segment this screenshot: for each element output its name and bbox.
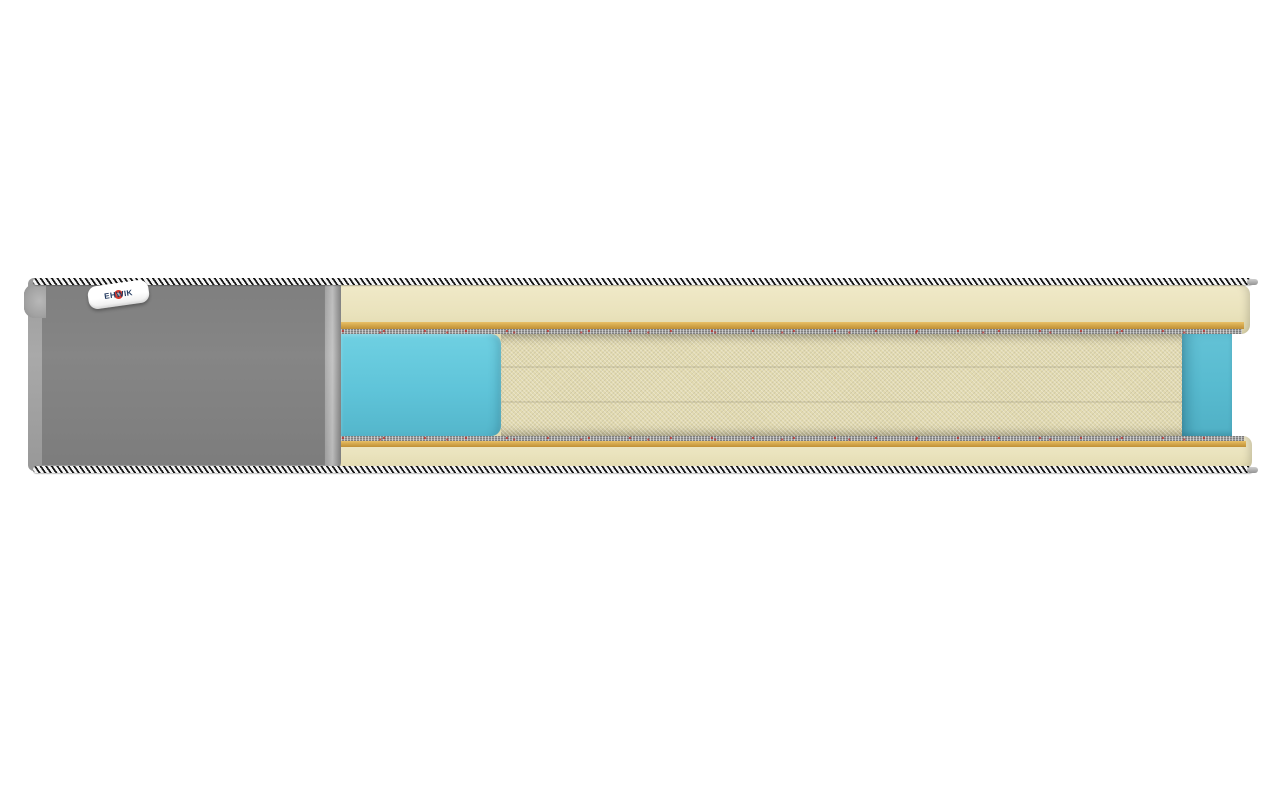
- foam-layer-top: [338, 285, 1250, 334]
- scallop-bump: [24, 284, 46, 318]
- fiber-pad-top: [338, 322, 1244, 329]
- turquoise-back-wall: [1182, 334, 1232, 436]
- pocket-springs-block: [501, 334, 1182, 436]
- fiber-pad-bottom: [338, 441, 1246, 447]
- cover-scallops: [24, 284, 46, 465]
- quilted-cover: [28, 278, 341, 471]
- piping-cord-bottom: [33, 466, 1253, 473]
- piping-cord-top: [33, 278, 1253, 285]
- piping-cord-end-top: [1247, 279, 1258, 285]
- piping-cord-end-bottom: [1247, 467, 1258, 473]
- quilt-grid: [42, 285, 325, 465]
- foam-layer-bottom: [338, 436, 1252, 470]
- turquoise-foam-block: [341, 334, 501, 436]
- mattress-cutaway-render: EHWIK: [0, 0, 1280, 800]
- spring-coils: [501, 334, 1182, 436]
- cover-rounded-edge: [324, 278, 341, 471]
